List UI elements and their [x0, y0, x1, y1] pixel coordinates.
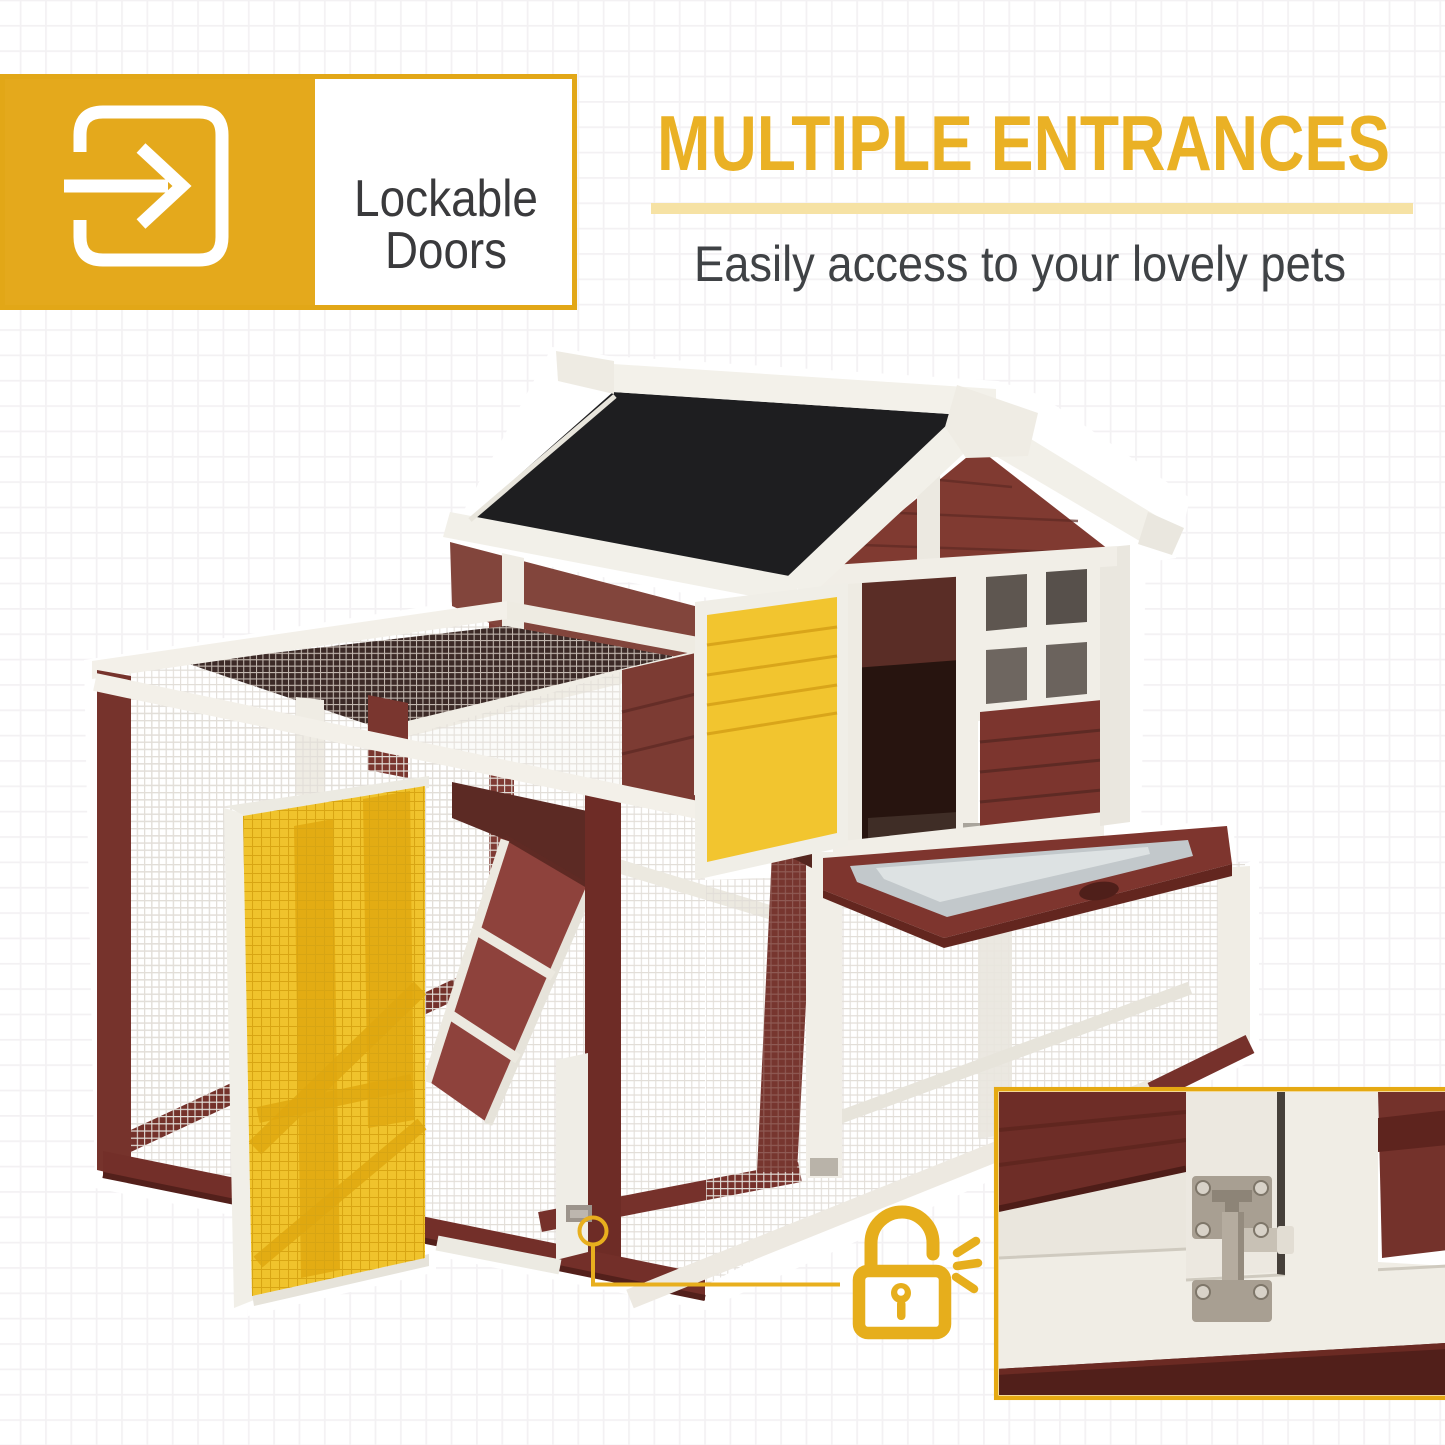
svg-text:Lockable: Lockable [354, 170, 538, 228]
svg-text:MULTIPLE ENTRANCES: MULTIPLE ENTRANCES [657, 99, 1390, 187]
svg-text:Easily access to your lovely p: Easily access to your lovely pets [694, 236, 1346, 292]
svg-text:Doors: Doors [385, 222, 507, 280]
